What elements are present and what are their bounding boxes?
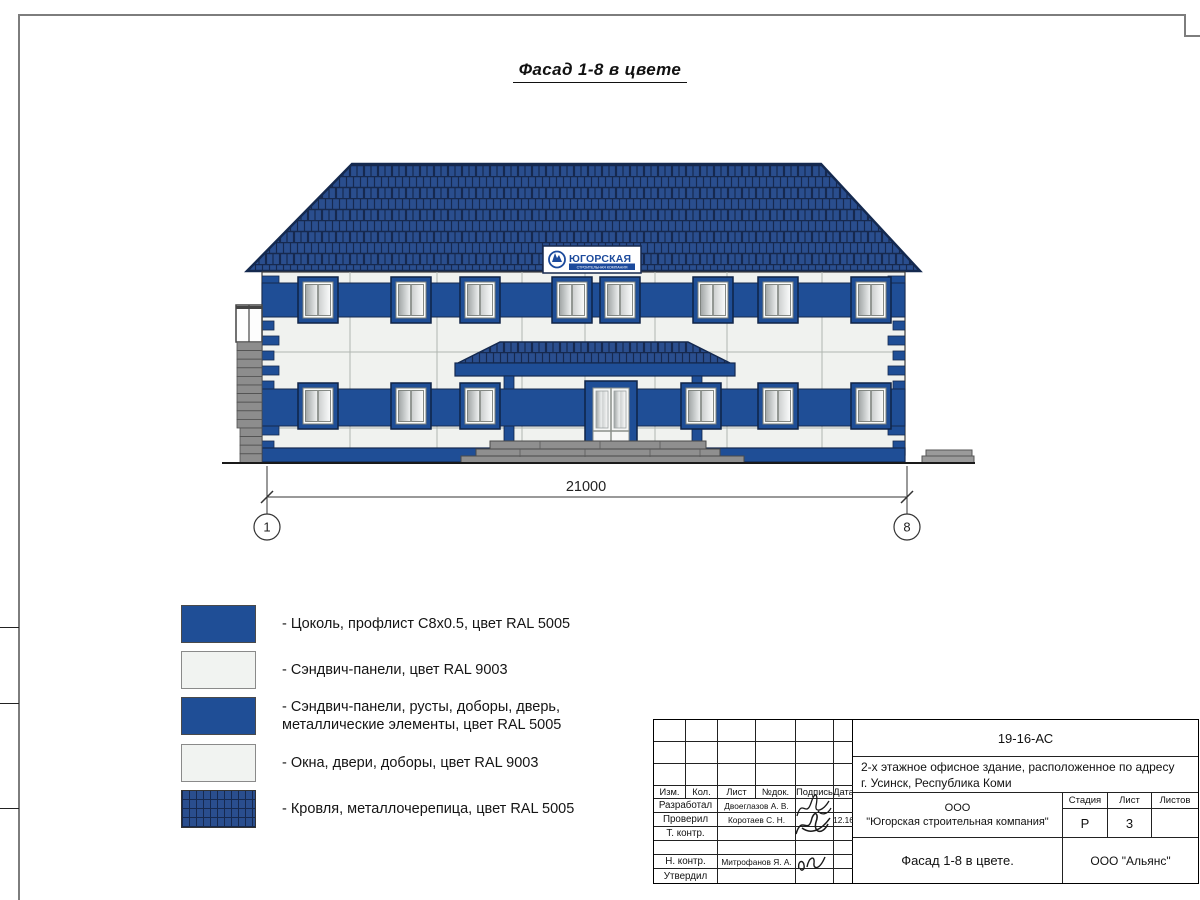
revision-rows: [654, 720, 852, 786]
legend-label: - Цоколь, профлист С8х0.5, цвет RAL 5005: [282, 615, 570, 633]
legend-label-line1: - Сэндвич-панели, русты, доборы, дверь,: [282, 698, 561, 716]
drawing-name: Фасад 1-8 в цвете.: [853, 838, 1063, 883]
dimension: 21000: [261, 466, 913, 514]
signature-row: Т. контр.: [654, 827, 852, 841]
right-curb: [922, 450, 974, 463]
exterior-stair: [236, 305, 262, 462]
axis-label-left: 1: [263, 520, 270, 535]
company-stage-row: ООО "Югорская строительная компания" Ста…: [853, 793, 1198, 838]
signature-table: Изм. Кол. Лист №док. Подпись Дата Разраб…: [654, 720, 853, 883]
legend-label: - Окна, двери, доборы, цвет RAL 9003: [282, 754, 538, 772]
sign-subtitle: СТРОИТЕЛЬНАЯ КОМПАНИЯ: [577, 266, 628, 270]
legend-swatch-white: [181, 651, 256, 689]
margin-tick: [0, 808, 19, 809]
signature-row: Разработал Двоеглазов А. В.: [654, 799, 852, 813]
stage-column: Стадия Р: [1063, 793, 1108, 837]
legend-item-windows: - Окна, двери, доборы, цвет RAL 9003: [181, 744, 538, 782]
title-block: Изм. Кол. Лист №док. Подпись Дата Разраб…: [653, 719, 1199, 884]
margin-tick: [0, 703, 19, 704]
drawing-name-row: Фасад 1-8 в цвете. ООО "Альянс": [853, 838, 1198, 883]
legend-label: - Сэндвич-панели, русты, доборы, дверь, …: [282, 698, 561, 734]
col-kol: Кол.: [686, 786, 718, 799]
legend-swatch-roof: [181, 790, 256, 828]
sheets-column: Листов: [1152, 793, 1198, 837]
title-block-right: 19-16-АС 2-х этажное офисное здание, рас…: [853, 720, 1198, 883]
col-izm: Изм.: [654, 786, 686, 799]
facade-drawing: ЮГОРСКАЯ СТРОИТЕЛЬНАЯ КОМПАНИЯ 21000 1 8: [0, 0, 1200, 560]
signature-row: Утвердил: [654, 869, 852, 883]
facade-sign: ЮГОРСКАЯ СТРОИТЕЛЬНАЯ КОМПАНИЯ: [543, 246, 641, 273]
legend-label: - Сэндвич-панели, цвет RAL 9003: [282, 661, 508, 679]
project-line-2: г. Усинск, Республика Коми: [861, 776, 1192, 792]
legend-swatch-white: [181, 744, 256, 782]
project-line-1: 2-х этажное офисное здание, расположенно…: [861, 760, 1192, 776]
company-name: ООО "Югорская строительная компания": [853, 793, 1063, 837]
legend-item-sandwich-blue: - Сэндвич-панели, русты, доборы, дверь, …: [181, 697, 561, 735]
col-list: Лист: [718, 786, 756, 799]
legend-swatch-blue: [181, 697, 256, 735]
signature-header-row: Изм. Кол. Лист №док. Подпись Дата: [654, 786, 852, 799]
legend-item-plinth: - Цоколь, профлист С8х0.5, цвет RAL 5005: [181, 605, 570, 643]
axis-label-right: 8: [903, 520, 910, 535]
col-data: Дата: [834, 786, 853, 799]
sheet-value: 3: [1108, 809, 1151, 837]
margin-tick: [0, 627, 19, 628]
sheet-column: Лист 3: [1108, 793, 1152, 837]
col-podpis: Подпись: [796, 786, 834, 799]
legend-swatch-blue: [181, 605, 256, 643]
entrance-steps: [461, 441, 744, 463]
document-number: 19-16-АС: [853, 720, 1198, 757]
col-ndok: №док.: [756, 786, 796, 799]
lower-band: [262, 389, 905, 426]
organization: ООО "Альянс": [1063, 838, 1198, 883]
sheets-value: [1152, 809, 1198, 837]
signature-row: Проверил Коротаев С. Н. 12.16: [654, 813, 852, 827]
project-description: 2-х этажное офисное здание, расположенно…: [853, 757, 1198, 793]
sign-name: ЮГОРСКАЯ: [569, 253, 631, 265]
legend-item-sandwich: - Сэндвич-панели, цвет RAL 9003: [181, 651, 508, 689]
axis-markers: 1 8: [254, 514, 920, 540]
signature-row: Н. контр. Митрофанов Я. А.: [654, 855, 852, 869]
stage-value: Р: [1063, 809, 1107, 837]
dimension-value: 21000: [566, 479, 606, 495]
legend-label-line2: металлические элементы, цвет RAL 5005: [282, 716, 561, 734]
legend-item-roof: - Кровля, металлочерепица, цвет RAL 5005: [181, 790, 574, 828]
legend-label: - Кровля, металлочерепица, цвет RAL 5005: [282, 800, 574, 818]
signature-row: [654, 841, 852, 855]
